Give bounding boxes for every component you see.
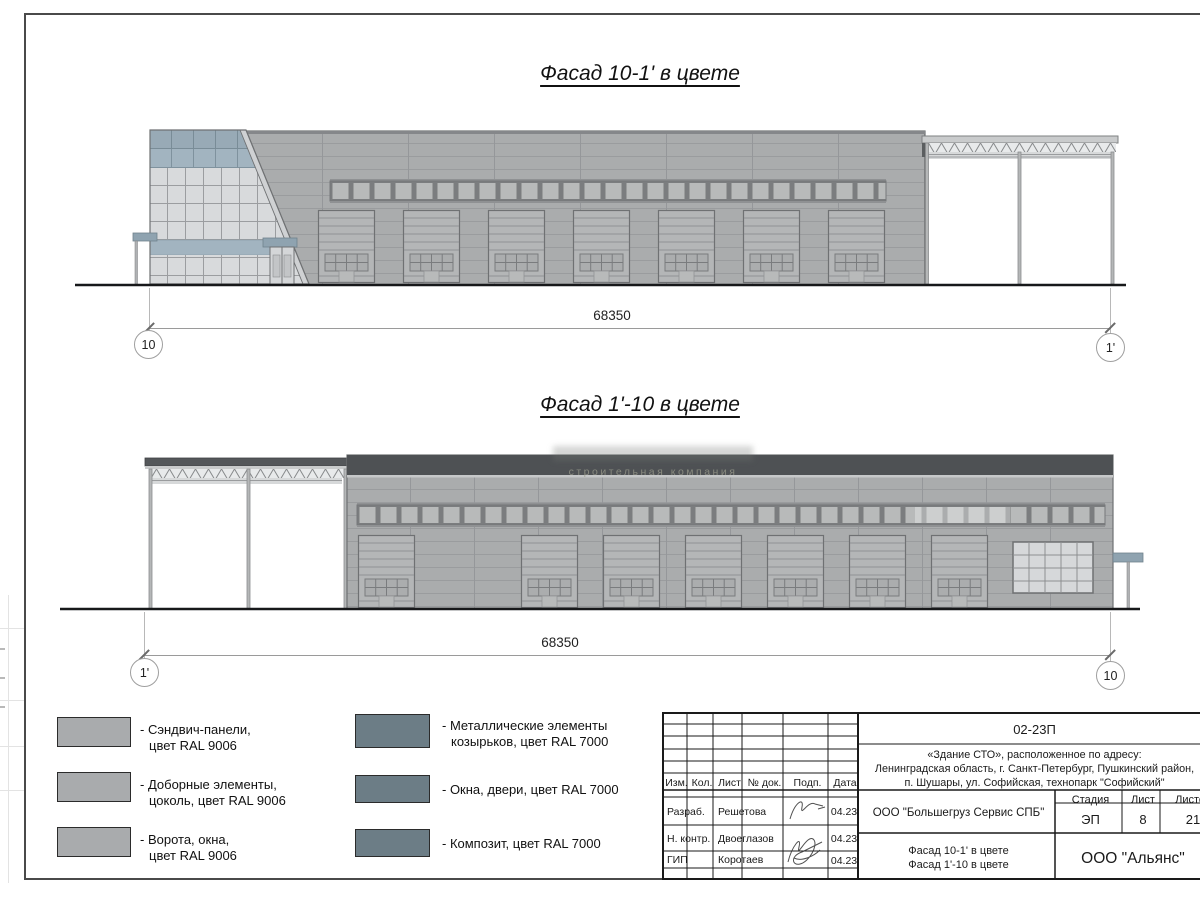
margin-line	[0, 700, 24, 701]
tb-col-list: Лист	[715, 777, 744, 789]
facade2-drawing	[55, 443, 1145, 618]
axis-bubble-f1-left: 10	[134, 330, 163, 359]
legend-swatch-ral7000	[355, 829, 430, 857]
legend-swatch-ral9006	[57, 827, 131, 857]
facade1-canopy	[922, 136, 1118, 284]
tb-col-podp: Подп.	[785, 777, 830, 789]
legend-label: - Металлические элементы козырьков, цвет…	[442, 718, 672, 750]
margin-tick	[0, 706, 5, 708]
axis-bubble-f2-left: 1'	[130, 658, 159, 687]
legend-label-line: - Металлические элементы	[442, 718, 672, 734]
legend-label-line: цоколь, цвет RAL 9006	[140, 793, 370, 809]
tb-stage-label: Стадия	[1057, 794, 1124, 806]
legend-label: - Композит, цвет RAL 7000	[442, 836, 672, 852]
legend-label: - Доборные элементы, цоколь, цвет RAL 90…	[140, 777, 370, 809]
legend-label: - Ворота, окна, цвет RAL 9006	[140, 832, 370, 864]
legend-label-line: козырьков, цвет RAL 7000	[442, 734, 672, 750]
legend-label-line: - Сэндвич-панели,	[140, 722, 370, 738]
legend-label: - Сэндвич-панели, цвет RAL 9006	[140, 722, 370, 754]
tb-address-line3: п. Шушары, ул. Софийская, технопарк "Соф…	[860, 777, 1200, 789]
dimension-value-f1: 68350	[537, 308, 687, 323]
extension-line	[1110, 612, 1111, 664]
legend-label-line: - Композит, цвет RAL 7000	[442, 836, 672, 852]
tb-sheet-label: Лист	[1124, 794, 1162, 806]
dimension-value-f2: 68350	[485, 635, 635, 650]
facade2-title: Фасад 1'-10 в цвете	[240, 393, 1040, 417]
facade1-hall	[237, 131, 925, 285]
legend-swatch-ral9006	[57, 717, 131, 747]
tb-address-line1: «Здание СТО», расположенное по адресу:	[860, 749, 1200, 761]
dimension-line-f2	[144, 655, 1111, 656]
tb-col-data: Дата	[830, 777, 860, 789]
signature-razrab	[790, 802, 825, 819]
legend-label-line: - Окна, двери, цвет RAL 7000	[442, 782, 672, 798]
legend-swatch-ral9006	[57, 772, 131, 802]
margin-tick	[0, 677, 5, 679]
legend-label-line: - Доборные элементы,	[140, 777, 370, 793]
legend-swatch-ral7000	[355, 775, 430, 803]
tb-name-reshetova: Решетова	[718, 806, 766, 818]
tb-sheet-title-line2: Фасад 1'-10 в цвете	[860, 859, 1057, 871]
legend-label-line: - Ворота, окна,	[140, 832, 370, 848]
tb-company: ООО "Альянс"	[1057, 850, 1200, 868]
tb-col-izm: Изм.	[664, 777, 689, 789]
tb-stage-value: ЭП	[1057, 812, 1124, 827]
legend-swatch-ral7000	[355, 714, 430, 748]
facade1-title: Фасад 10-1' в цвете	[240, 62, 1040, 86]
margin-line	[0, 746, 24, 747]
tb-client: ООО "Большегруз Сервис СПБ"	[860, 807, 1057, 819]
margin-line	[8, 595, 9, 883]
tb-role-nkontr: Н. контр.	[667, 833, 710, 845]
tb-doc-number: 02-23П	[860, 722, 1200, 737]
drawing-sheet: Фасад 10-1' в цвете	[0, 0, 1200, 900]
tb-sheet-number: 8	[1124, 812, 1162, 827]
title-block: Изм. Кол. Лист № док. Подп. Дата Разраб.…	[662, 712, 1200, 880]
legend-label-line: цвет RAL 9006	[140, 848, 370, 864]
axis-bubble-f1-right: 1'	[1096, 333, 1125, 362]
legend-label: - Окна, двери, цвет RAL 7000	[442, 782, 672, 798]
tb-name-dvoeglazov: Двоеглазов	[718, 833, 774, 845]
tb-col-kol: Кол.	[689, 777, 715, 789]
tb-address-line2: Ленинградская область, г. Санкт-Петербур…	[860, 763, 1200, 775]
tb-sheet-title-line1: Фасад 10-1' в цвете	[860, 845, 1057, 857]
tb-sheets-label: Листов	[1162, 794, 1200, 806]
tb-date: 04.23	[828, 833, 860, 845]
tb-name-korotaev: Коротаев	[718, 854, 763, 866]
facade1-drawing	[70, 118, 1130, 293]
facade2-canopy	[145, 458, 348, 609]
margin-line	[0, 628, 24, 629]
tb-date: 04.23	[828, 855, 860, 867]
tb-sheets-total: 21	[1162, 812, 1200, 827]
margin-tick	[0, 648, 5, 650]
tb-role-razrab: Разраб.	[667, 806, 705, 818]
dimension-line-f1	[149, 328, 1111, 329]
legend-label-line: цвет RAL 9006	[140, 738, 370, 754]
margin-line	[0, 790, 24, 791]
axis-bubble-f2-right: 10	[1096, 661, 1125, 690]
tb-col-doc: № док.	[744, 777, 785, 789]
facade2-hall	[347, 455, 1143, 609]
tb-date: 04.23	[828, 806, 860, 818]
tb-role-gip: ГИП	[667, 854, 688, 866]
